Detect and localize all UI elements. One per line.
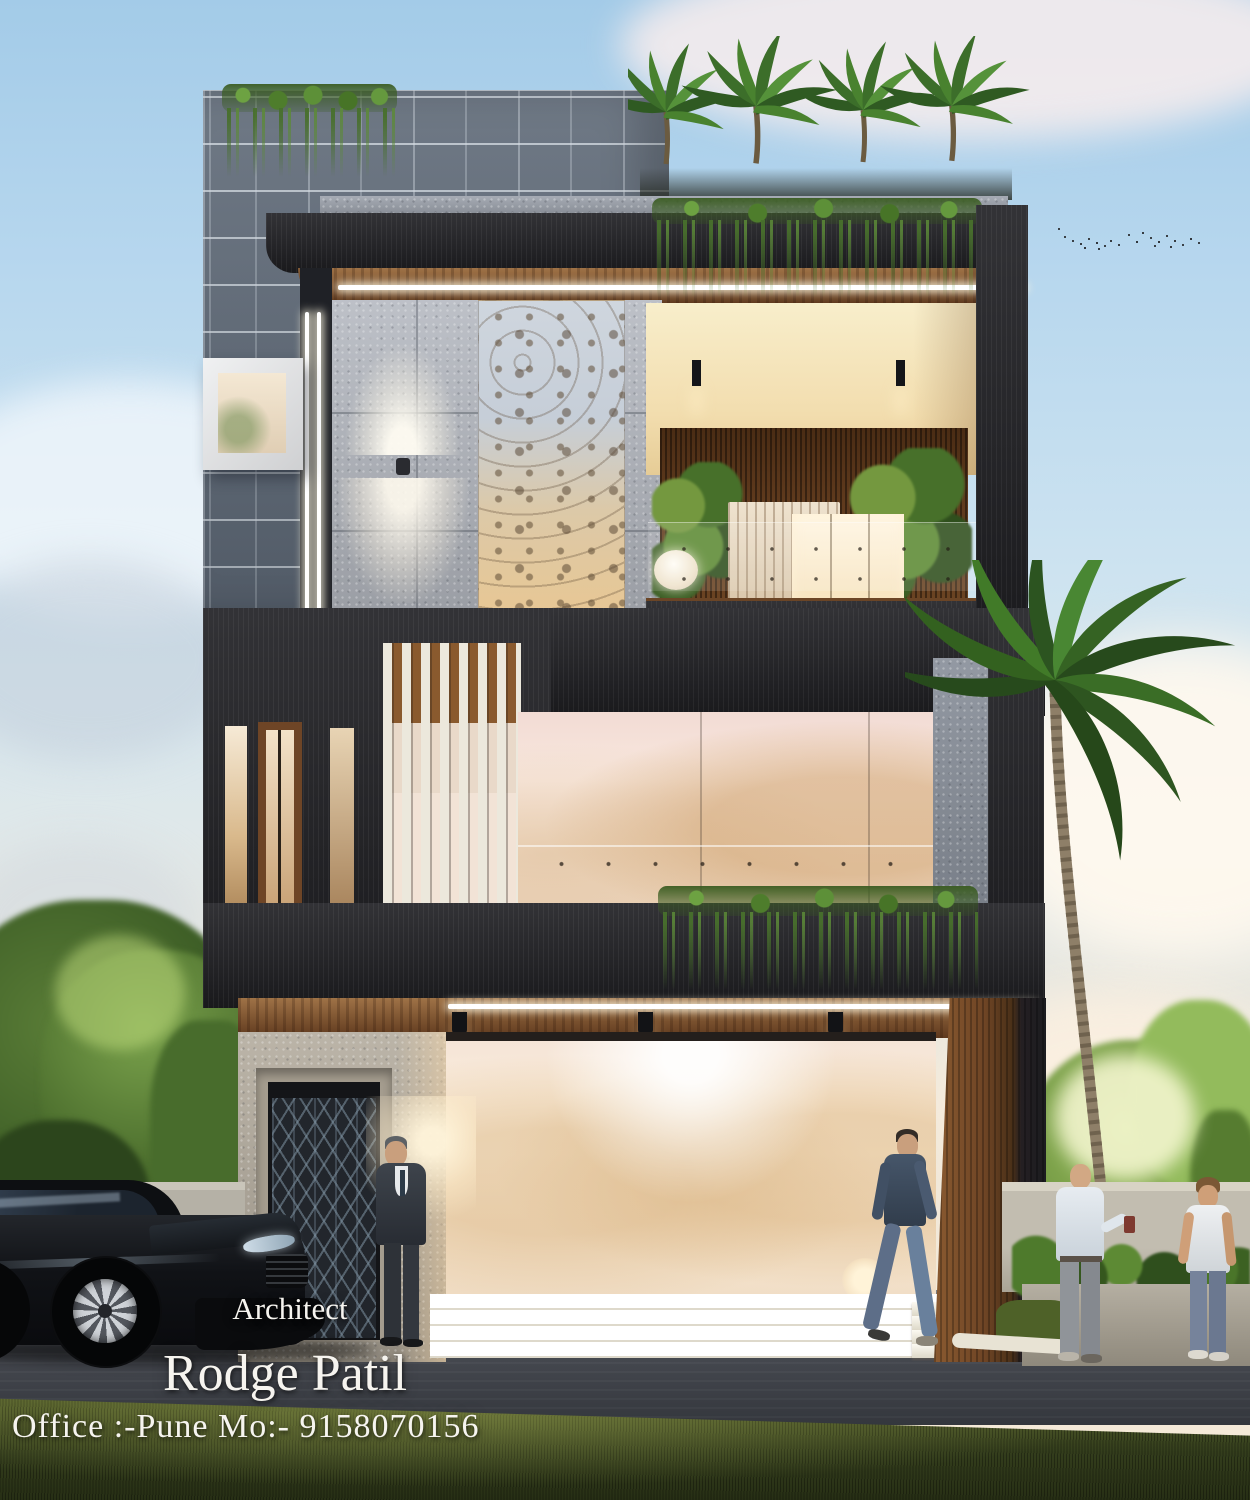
suit-man-tie	[400, 1170, 405, 1196]
vine-strands	[652, 220, 982, 302]
phone-man-shirt	[1056, 1187, 1104, 1261]
phone-man-leg	[1060, 1262, 1079, 1354]
louver-screen	[383, 643, 521, 909]
slit-mullion	[278, 730, 281, 904]
architectural-render-scene: Architect Rodge Patil Office :-Pune Mo:-…	[0, 0, 1250, 1500]
window-pane	[218, 373, 286, 453]
palm-tree	[905, 560, 1250, 1220]
vine-strands	[222, 108, 397, 180]
overlay-architect-name: Rodge Patil	[105, 1344, 465, 1403]
tee-man-shoe	[1209, 1352, 1229, 1361]
walking-man-shoe	[916, 1336, 938, 1346]
tee-man-shoe	[1188, 1350, 1208, 1359]
suit-man-leg	[403, 1245, 419, 1341]
tee-man-leg	[1209, 1271, 1226, 1355]
phone-man-shoe	[1058, 1352, 1079, 1361]
phone-man-head	[1070, 1164, 1091, 1189]
slit-window	[330, 728, 354, 910]
tee-man-leg	[1190, 1271, 1207, 1353]
downlight	[828, 1012, 843, 1034]
gf-glass-header	[446, 1032, 936, 1041]
slit-window-framed	[258, 722, 302, 912]
tree-highlight	[55, 935, 185, 1050]
window-box	[203, 358, 303, 470]
pendant-light	[896, 360, 905, 386]
wall-light-fixture	[396, 458, 410, 475]
parapet-vine	[222, 84, 397, 184]
car-grille	[266, 1254, 308, 1288]
wall-light-up-glow	[345, 345, 460, 455]
roof-vine	[652, 198, 982, 306]
car-wheel-hub	[98, 1304, 112, 1318]
overlay-office-contact: Office :-Pune Mo:- 9158070156	[12, 1408, 479, 1446]
phone	[1124, 1216, 1135, 1233]
wall-light-down-glow	[338, 478, 468, 603]
phone-man-shoe	[1081, 1354, 1102, 1363]
pendant-light	[692, 360, 701, 386]
slit-window	[225, 726, 247, 910]
overlay-architect-label: Architect	[190, 1291, 390, 1327]
downlight	[452, 1012, 467, 1034]
phone-man-leg	[1081, 1262, 1100, 1356]
downlight	[638, 1012, 653, 1034]
rooftop-palms	[628, 36, 1038, 202]
jali-panel	[478, 300, 625, 610]
birds-flock	[1058, 228, 1060, 230]
